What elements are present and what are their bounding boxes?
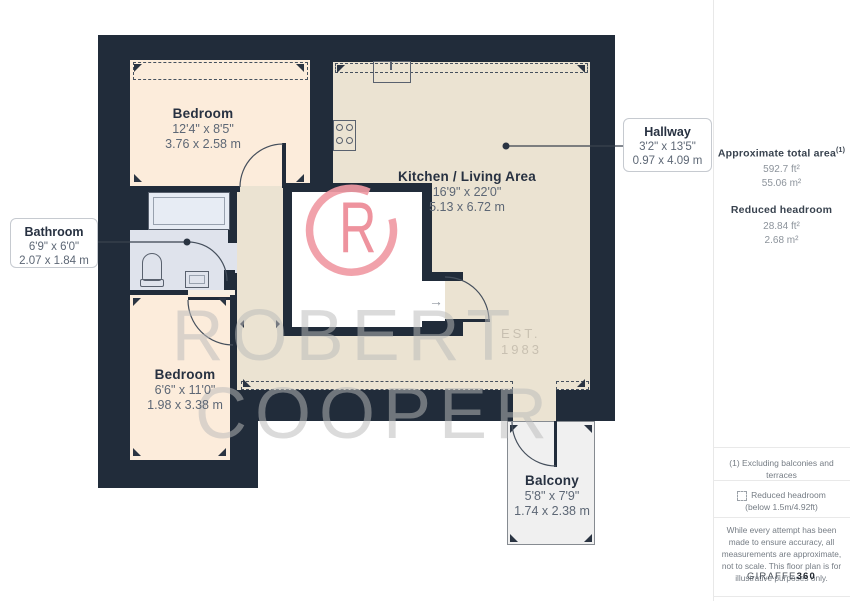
corner-tick — [134, 174, 142, 182]
giraffe360-logo-text: GIRAFFE — [747, 571, 797, 582]
toilet-icon — [142, 253, 162, 281]
doorway-bedroom-2 — [188, 290, 235, 295]
corner-tick — [296, 174, 304, 182]
corner-tick — [133, 298, 141, 306]
void-wall-left — [283, 192, 292, 327]
room-bedroom-2 — [130, 295, 230, 460]
bathtub-inner-icon — [153, 197, 225, 225]
corner-tick — [584, 425, 592, 433]
headroom-label: Reduced headroom — [713, 204, 850, 216]
callout-dim-metric: 2.07 x 1.84 m — [13, 254, 95, 268]
total-area-ft: 592.7 ft² — [713, 164, 850, 175]
corner-tick — [510, 425, 518, 433]
void-wall-bottom — [283, 327, 463, 336]
total-area-label-text: Approximate total area — [718, 148, 836, 160]
room-balcony — [507, 421, 595, 545]
callout-name: Hallway — [626, 124, 709, 140]
void-wall-right — [422, 192, 432, 272]
entrance-arrow-icon: → — [429, 294, 443, 308]
bathroom-door-stub — [224, 270, 235, 290]
floorplan-page: R ROBERT COOPER EST. 1983 → Bedroom 12'4… — [0, 0, 850, 601]
reduced-headroom-legend-icon — [737, 491, 747, 501]
door-leaf-bedroom-1 — [282, 143, 286, 188]
burner-icon — [346, 137, 353, 144]
void-wall-jog — [422, 272, 463, 281]
headroom-ft: 28.84 ft² — [713, 221, 850, 232]
callout-hallway: Hallway 3'2" x 13'5" 0.97 x 4.09 m — [623, 118, 712, 172]
sidebar-divider — [713, 596, 850, 597]
toilet-base-icon — [140, 279, 164, 287]
total-area-m: 55.06 m² — [713, 178, 850, 189]
sidebar-divider — [713, 517, 850, 518]
door-leaf-balcony — [554, 421, 557, 467]
legend-sub: (below 1.5m/4.92ft) — [713, 501, 850, 513]
giraffe360-logo: GIRAFFE360 — [713, 571, 850, 582]
callout-dim-metric: 0.97 x 4.09 m — [626, 154, 709, 168]
corner-tick — [577, 65, 585, 73]
callout-name: Bathroom — [13, 224, 95, 240]
burner-icon — [346, 124, 353, 131]
burner-icon — [336, 137, 343, 144]
door-leaf-bedroom-2 — [188, 297, 234, 300]
corner-tick — [510, 534, 518, 542]
burner-icon — [336, 124, 343, 131]
reduced-headroom-zone-bottom-left — [241, 381, 513, 390]
corner-tick — [296, 64, 304, 72]
sidebar-divider — [713, 480, 850, 481]
bathroom-sink-inner-icon — [189, 275, 205, 284]
corner-tick — [337, 65, 345, 73]
callout-bathroom: Bathroom 6'9" x 6'0" 2.07 x 1.84 m — [10, 218, 98, 268]
callout-dim-imperial: 3'2" x 13'5" — [626, 140, 709, 154]
kitchen-tap-icon — [390, 62, 392, 70]
width-tick — [236, 320, 244, 328]
doorway-bathroom — [228, 243, 237, 273]
footnote-balconies: (1) Excluding balconies and terraces — [713, 457, 850, 481]
corner-tick — [584, 534, 592, 542]
corner-tick — [218, 448, 226, 456]
void-wall-top — [283, 183, 432, 192]
total-area-label: Approximate total area(1) — [713, 147, 850, 160]
sidebar-divider — [713, 447, 850, 448]
width-tick — [276, 320, 284, 328]
reduced-headroom-zone-bedroom — [133, 62, 308, 80]
total-area-footnote-marker: (1) — [836, 147, 845, 154]
corner-tick — [134, 64, 142, 72]
giraffe360-logo-360: 360 — [797, 571, 816, 582]
corner-tick — [218, 298, 226, 306]
corner-tick — [133, 448, 141, 456]
corner-tick — [243, 379, 251, 387]
legend-label: Reduced headroom — [751, 490, 826, 500]
doorway-bedroom-1 — [240, 186, 283, 192]
legend-reduced-headroom: Reduced headroom — [713, 489, 850, 501]
corner-tick — [577, 379, 585, 387]
void-area — [292, 192, 422, 327]
door-leaf-entrance — [445, 319, 490, 322]
callout-dim-imperial: 6'9" x 6'0" — [13, 240, 95, 254]
headroom-m: 2.68 m² — [713, 235, 850, 246]
doorway-balcony — [513, 390, 556, 423]
kitchen-sink-icon — [373, 61, 411, 83]
